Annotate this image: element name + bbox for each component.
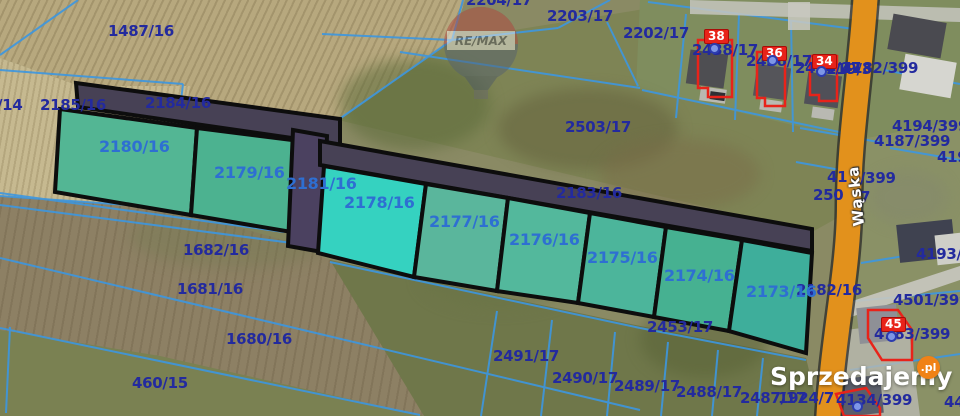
address-point-icon bbox=[816, 66, 827, 77]
address-point-icon bbox=[886, 331, 897, 342]
house-number-marker: 38 bbox=[704, 29, 729, 44]
house-number-marker: 45 bbox=[881, 317, 906, 332]
address-point-icon bbox=[852, 401, 863, 412]
map-canvas[interactable]: RE/MAX 1487/162204/172203/172202/172503/… bbox=[0, 0, 960, 416]
address-point-icon bbox=[767, 55, 778, 66]
sprzedajemy-watermark: Sprzedajemy .pl bbox=[770, 363, 952, 391]
address-point-icon bbox=[709, 43, 720, 54]
sprzedajemy-pl-badge: .pl bbox=[917, 356, 940, 379]
house-markers-layer: 38363445 bbox=[0, 0, 960, 416]
